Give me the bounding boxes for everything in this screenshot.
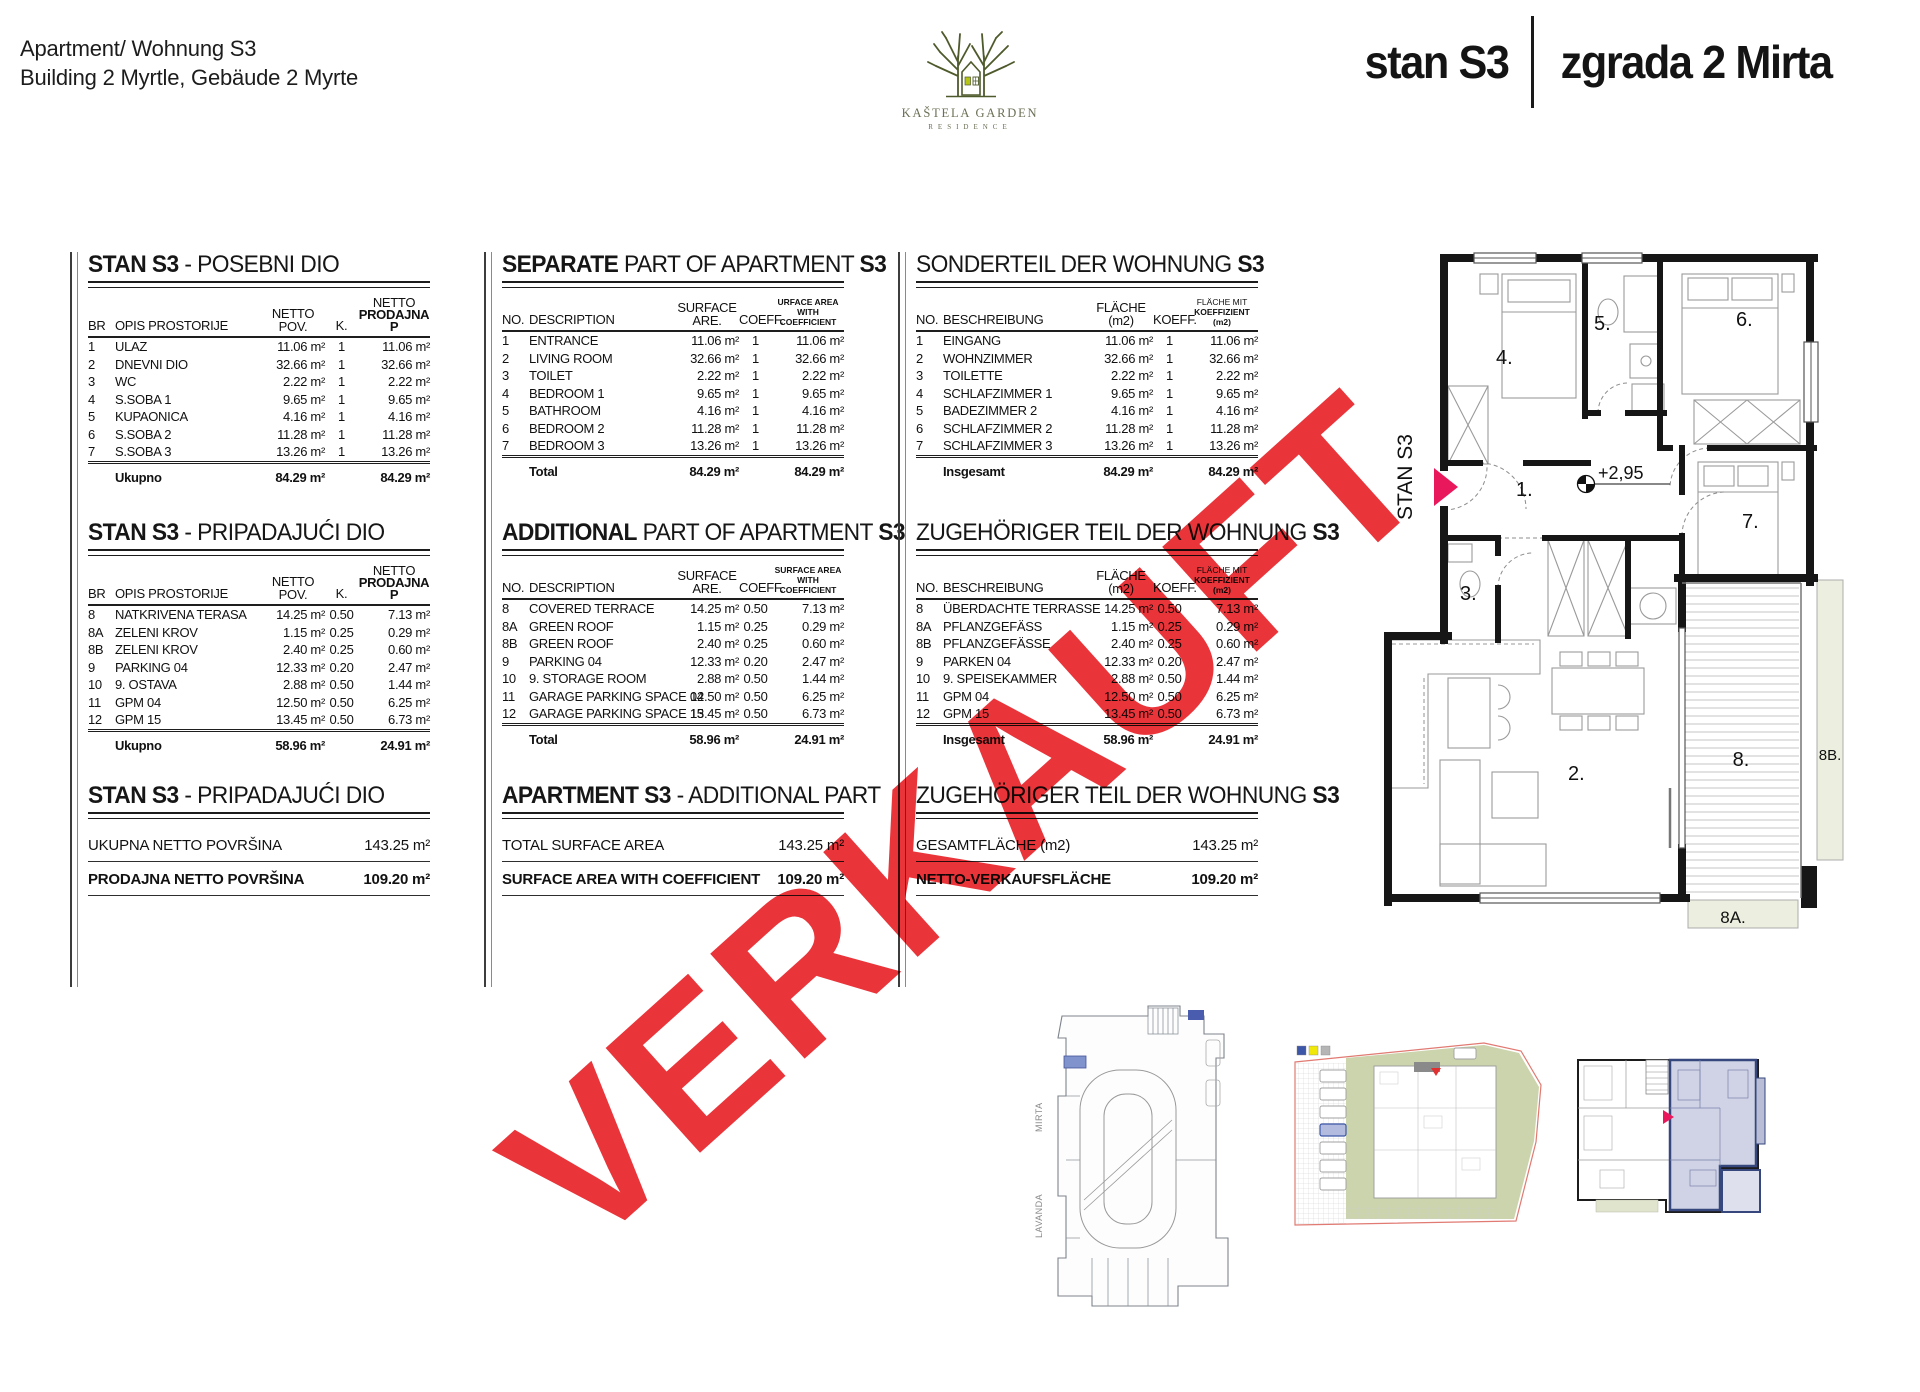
table-total-row: Ukupno58.96 m²24.91 m² xyxy=(88,730,430,754)
table-row: 6S.SOBA 211.28 m²111.28 m² xyxy=(88,426,430,444)
room-label-5: 5. xyxy=(1594,313,1611,335)
garage-marker xyxy=(1188,1010,1204,1020)
table-row: 12GPM 1513.45 m²0.506.73 m² xyxy=(88,711,430,730)
summary-hr: STAN S3 - PRIPADAJUĆI DIO UKUPNA NETTO P… xyxy=(88,783,430,896)
table-row: 12GARAGE PARKING SPACE 1513.45 m²0.506.7… xyxy=(502,705,844,724)
table-row: 11GARAGE PARKING SPACE 0412.50 m²0.506.2… xyxy=(502,688,844,706)
table-row: 109. OSTAVA2.88 m²0.501.44 m² xyxy=(88,676,430,694)
table-row: 9PARKEN 0412.33 m²0.202.47 m² xyxy=(916,653,1258,671)
table-row: 4SCHLAFZIMMER 19.65 m²19.65 m² xyxy=(916,385,1258,403)
section-german: SONDERTEIL DER WOHNUNG S3 NO. BESCHREIBU… xyxy=(898,252,1270,997)
garage-plan: LAVANDA MIRTA xyxy=(1028,1000,1253,1330)
table-row: 1ULAZ11.06 m²111.06 m² xyxy=(88,337,430,356)
summary-row-total: UKUPNA NETTO POVRŠINA143.25 m² xyxy=(88,828,430,862)
title-rule xyxy=(916,812,1258,819)
title-rule xyxy=(502,549,844,556)
section-rule xyxy=(484,252,492,987)
section-rule xyxy=(898,252,906,987)
table-row: 8APFLANZGEFÄSS1.15 m²0.250.29 m² xyxy=(916,618,1258,636)
table-separate-en: SEPARATE PART OF APARTMENT S3 NO. DESCRI… xyxy=(502,252,844,480)
terrace-decking xyxy=(1684,588,1799,892)
garage-highlight-space xyxy=(1064,1056,1086,1068)
street-label-mirta: MIRTA xyxy=(1034,1102,1044,1132)
summary-title: ZUGEHÖRIGER TEIL DER WOHNUNG S3 xyxy=(916,783,1241,809)
section-english: SEPARATE PART OF APARTMENT S3 NO. DESCRI… xyxy=(484,252,856,997)
table-row: 2LIVING ROOM32.66 m²132.66 m² xyxy=(502,350,844,368)
table-title: ADDITIONAL PART OF APARTMENT S3 xyxy=(502,520,827,546)
summary-en: APARTMENT S3 - ADDITIONAL PART TOTAL SUR… xyxy=(502,783,844,896)
building-name-title: zgrada 2 Mirta xyxy=(1561,35,1832,89)
table-separate-de: SONDERTEIL DER WOHNUNG S3 NO. BESCHREIBU… xyxy=(916,252,1258,480)
table-row: 109. STORAGE ROOM2.88 m²0.501.44 m² xyxy=(502,670,844,688)
ground-green-strip xyxy=(1596,1200,1658,1212)
elevation-label: +2,95 xyxy=(1598,463,1644,483)
room-label-1: 1. xyxy=(1516,479,1533,501)
room-label-8: 8. xyxy=(1733,749,1750,771)
logo-subtitle: RESIDENCE xyxy=(892,123,1048,131)
table-additional-hr: STAN S3 - PRIPADAJUĆI DIO BR OPIS PROSTO… xyxy=(88,520,430,754)
summary-row-sale: PRODAJNA NETTO POVRŠINA109.20 m² xyxy=(88,862,430,896)
table-row: 3TOILETTE2.22 m²12.22 m² xyxy=(916,367,1258,385)
tree-house-logo-icon xyxy=(910,22,1030,100)
building-title: Building 2 Myrtle, Gebäude 2 Myrte xyxy=(20,63,358,92)
table-total-row: Total84.29 m²84.29 m² xyxy=(502,456,844,480)
room-label-3: 3. xyxy=(1460,583,1477,605)
unit-terrace xyxy=(1722,1170,1760,1212)
section-croatian: STAN S3 - POSEBNI DIO BR OPIS PROSTORIJE… xyxy=(70,252,442,997)
summary-row-total: TOTAL SURFACE AREA143.25 m² xyxy=(502,828,844,862)
table-row: 8BPFLANZGEFÄSSE2.40 m²0.250.60 m² xyxy=(916,635,1258,653)
legend-blue xyxy=(1297,1046,1306,1055)
summary-title: APARTMENT S3 - ADDITIONAL PART xyxy=(502,783,827,809)
table-row: 5BADEZIMMER 24.16 m²14.16 m² xyxy=(916,402,1258,420)
table-row: 11GPM 0412.50 m²0.506.25 m² xyxy=(916,688,1258,706)
table-separate-hr: STAN S3 - POSEBNI DIO BR OPIS PROSTORIJE… xyxy=(88,252,430,486)
table-header: NO. DESCRIPTION SURFACEARE. COEFF. SURFA… xyxy=(502,565,844,599)
table-header: NO. DESCRIPTION SURFACEARE. COEFF. URFAC… xyxy=(502,297,844,331)
street-label-lavanda: LAVANDA xyxy=(1034,1194,1044,1238)
table-header: NO. BESCHREIBUNG FLÄCHE (m2) KOEFF. FLÄC… xyxy=(916,565,1258,599)
header-divider xyxy=(1531,16,1534,108)
table-row: 6BEDROOM 211.28 m²111.28 m² xyxy=(502,420,844,438)
table-row: 2WOHNZIMMER32.66 m²132.66 m² xyxy=(916,350,1258,368)
table-row: 7BEDROOM 313.26 m²113.26 m² xyxy=(502,437,844,456)
table-row: 5BATHROOM4.16 m²14.16 m² xyxy=(502,402,844,420)
entrance-arrow-icon xyxy=(1434,468,1458,506)
legend-swatches xyxy=(1297,1046,1330,1055)
room-label-4: 4. xyxy=(1496,347,1513,369)
table-header: BR OPIS PROSTORIJE NETTOPOV. K. NETTOPRO… xyxy=(88,297,430,337)
table-row: 8BZELENI KROV2.40 m²0.250.60 m² xyxy=(88,641,430,659)
legend-yellow xyxy=(1309,1046,1318,1055)
apartment-title: Apartment/ Wohnung S3 xyxy=(20,34,358,63)
summary-row-sale: SURFACE AREA WITH COEFFICIENT109.20 m² xyxy=(502,862,844,896)
table-row: 109. SPEISEKAMMER2.88 m²0.501.44 m² xyxy=(916,670,1258,688)
summary-row-sale: NETTO-VERKAUFSFLÄCHE109.20 m² xyxy=(916,862,1258,896)
site-plan xyxy=(1288,1038,1563,1243)
site-building xyxy=(1374,1062,1496,1198)
table-row: 1ENTRANCE11.06 m²111.06 m² xyxy=(502,331,844,350)
kastela-garden-logo: KAŠTELA GARDEN RESIDENCE xyxy=(892,22,1048,131)
building-stairs xyxy=(1646,1060,1668,1094)
room-label-8a: 8A. xyxy=(1720,908,1746,927)
table-total-row: Total58.96 m²24.91 m² xyxy=(502,724,844,748)
table-row: 3TOILET2.22 m²12.22 m² xyxy=(502,367,844,385)
table-row: 9PARKING 0412.33 m²0.202.47 m² xyxy=(502,653,844,671)
summary-row-total: GESAMTFLÄCHE (m2)143.25 m² xyxy=(916,828,1258,862)
title-rule xyxy=(88,281,430,288)
title-rule xyxy=(502,281,844,288)
table-title: SONDERTEIL DER WOHNUNG S3 xyxy=(916,252,1241,278)
site-paving-bottom xyxy=(1346,1206,1496,1219)
wall-stub xyxy=(1801,866,1817,908)
table-row: 7SCHLAFZIMMER 313.26 m²113.26 m² xyxy=(916,437,1258,456)
table-title: SEPARATE PART OF APARTMENT S3 xyxy=(502,252,827,278)
table-additional-de: ZUGEHÖRIGER TEIL DER WOHNUNG S3 NO. BESC… xyxy=(916,520,1258,748)
table-row: 7S.SOBA 313.26 m²113.26 m² xyxy=(88,443,430,462)
walls-outer xyxy=(1388,258,1814,902)
legend-gray xyxy=(1321,1046,1330,1055)
table-row: 1EINGANG11.06 m²111.06 m² xyxy=(916,331,1258,350)
table-row: 5KUPAONICA4.16 m²14.16 m² xyxy=(88,408,430,426)
room-label-6: 6. xyxy=(1736,309,1753,331)
building-floor-plan xyxy=(1570,1050,1770,1225)
title-rule xyxy=(88,549,430,556)
apartment-floor-plan: STAN S3 +2,95 1. 2. 3. 4. 5. 6. 7. 8. 8A… xyxy=(1330,248,1920,948)
table-row: 8NATKRIVENA TERASA14.25 m²0.507.13 m² xyxy=(88,605,430,624)
table-total-row: Insgesamt58.96 m²24.91 m² xyxy=(916,724,1258,748)
room-labels: 1. 2. 3. 4. 5. 6. 7. 8. 8A. 8B. xyxy=(1460,309,1841,927)
table-row: 6SCHLAFZIMMER 211.28 m²111.28 m² xyxy=(916,420,1258,438)
table-total-row: Insgesamt84.29 m²84.29 m² xyxy=(916,456,1258,480)
unit-green-strip xyxy=(1756,1078,1765,1144)
table-row: 4BEDROOM 19.65 m²19.65 m² xyxy=(502,385,844,403)
section-rule xyxy=(70,252,78,987)
green-roof-8b xyxy=(1817,580,1843,860)
room-label-2: 2. xyxy=(1568,763,1585,785)
unit-label: STAN S3 xyxy=(1394,434,1417,520)
table-row: 3WC2.22 m²12.22 m² xyxy=(88,373,430,391)
room-label-8b: 8B. xyxy=(1819,747,1842,764)
table-row: 11GPM 0412.50 m²0.506.25 m² xyxy=(88,694,430,712)
table-row: 8AZELENI KROV1.15 m²0.250.29 m² xyxy=(88,624,430,642)
summary-de: ZUGEHÖRIGER TEIL DER WOHNUNG S3 GESAMTFL… xyxy=(916,783,1258,896)
title-rule xyxy=(916,549,1258,556)
document-header-left: Apartment/ Wohnung S3 Building 2 Myrtle,… xyxy=(20,34,358,92)
table-title: STAN S3 - PRIPADAJUĆI DIO xyxy=(88,520,413,546)
table-additional-en: ADDITIONAL PART OF APARTMENT S3 NO. DESC… xyxy=(502,520,844,748)
table-row: 8ÜBERDACHTE TERRASSE14.25 m²0.507.13 m² xyxy=(916,599,1258,618)
document-header-right: stan S3 zgrada 2 Mirta xyxy=(1360,16,1840,108)
logo-name: KAŠTELA GARDEN xyxy=(892,106,1048,121)
table-row: 9PARKING 0412.33 m²0.202.47 m² xyxy=(88,659,430,677)
table-row: 2DNEVNI DIO32.66 m²132.66 m² xyxy=(88,356,430,374)
summary-title: STAN S3 - PRIPADAJUĆI DIO xyxy=(88,783,413,809)
floor-plan-document-page: Apartment/ Wohnung S3 Building 2 Myrtle,… xyxy=(0,0,1920,1392)
table-header: NO. BESCHREIBUNG FLÄCHE (m2) KOEFF. FLÄC… xyxy=(916,297,1258,331)
table-row: 12GPM 1513.45 m²0.506.73 m² xyxy=(916,705,1258,724)
table-row: 4S.SOBA 19.65 m²19.65 m² xyxy=(88,391,430,409)
title-rule xyxy=(916,281,1258,288)
table-row: 8COVERED TERRACE14.25 m²0.507.13 m² xyxy=(502,599,844,618)
table-header: BR OPIS PROSTORIJE NETTOPOV. K. NETTOPRO… xyxy=(88,565,430,605)
table-row: 8BGREEN ROOF2.40 m²0.250.60 m² xyxy=(502,635,844,653)
highlighted-parking-space xyxy=(1320,1124,1346,1136)
title-rule xyxy=(88,812,430,819)
unit-title: stan S3 xyxy=(1365,35,1509,89)
table-title: ZUGEHÖRIGER TEIL DER WOHNUNG S3 xyxy=(916,520,1241,546)
table-row: 8AGREEN ROOF1.15 m²0.250.29 m² xyxy=(502,618,844,636)
table-total-row: Ukupno84.29 m²84.29 m² xyxy=(88,462,430,486)
table-title: STAN S3 - POSEBNI DIO xyxy=(88,252,413,278)
title-rule xyxy=(502,812,844,819)
room-label-7: 7. xyxy=(1742,511,1759,533)
